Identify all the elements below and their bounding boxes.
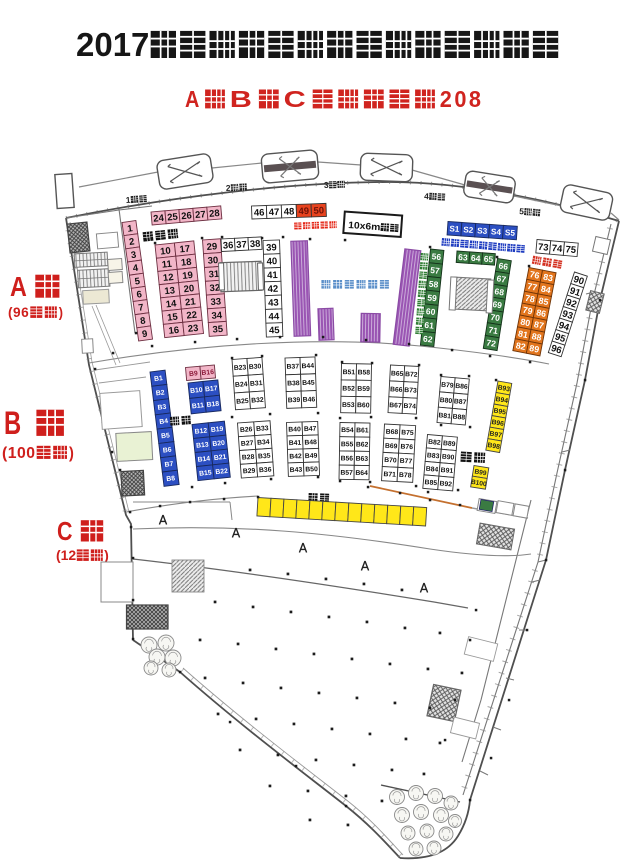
svg-text:A: A <box>10 271 30 302</box>
svg-text:B71: B71 <box>383 471 396 479</box>
svg-text:B7: B7 <box>164 461 174 469</box>
svg-text:66: 66 <box>498 260 509 271</box>
svg-text:B44: B44 <box>301 363 314 370</box>
svg-text:41: 41 <box>267 270 279 281</box>
svg-text:72: 72 <box>486 337 497 348</box>
svg-text:B90: B90 <box>442 454 455 462</box>
svg-text:B23: B23 <box>234 364 247 372</box>
svg-text:62: 62 <box>423 334 434 345</box>
svg-text:79: 79 <box>522 305 534 317</box>
svg-text:30: 30 <box>207 255 218 267</box>
svg-text:B37: B37 <box>286 363 299 370</box>
svg-text:B39: B39 <box>288 397 301 404</box>
svg-text:S4: S4 <box>491 227 502 237</box>
svg-text:61: 61 <box>424 320 435 331</box>
svg-text:B49: B49 <box>305 453 318 460</box>
svg-text:B57: B57 <box>340 470 353 477</box>
svg-text:35: 35 <box>212 324 224 336</box>
svg-text:58: 58 <box>428 279 439 290</box>
svg-text:89: 89 <box>529 343 541 355</box>
svg-text:B2: B2 <box>156 389 166 397</box>
svg-text:B31: B31 <box>250 380 263 388</box>
svg-text:B17: B17 <box>205 385 218 393</box>
svg-text:B80: B80 <box>439 397 452 405</box>
svg-text:13: 13 <box>164 285 176 297</box>
svg-text:85: 85 <box>538 295 550 307</box>
svg-text:B12: B12 <box>194 427 207 435</box>
svg-text:80: 80 <box>520 317 532 329</box>
svg-text:B42: B42 <box>289 453 302 460</box>
svg-text:C: C <box>57 516 76 546</box>
svg-text:B91: B91 <box>440 467 453 475</box>
svg-text:B: B <box>230 86 256 112</box>
svg-text:B55: B55 <box>341 441 354 448</box>
svg-text:B19: B19 <box>211 426 224 434</box>
svg-text:B54: B54 <box>341 427 354 434</box>
svg-text:49: 49 <box>298 206 309 217</box>
svg-text:B33: B33 <box>256 425 269 433</box>
svg-text:59: 59 <box>427 292 438 303</box>
svg-text:B21: B21 <box>214 454 227 462</box>
svg-text:): ) <box>59 304 64 320</box>
svg-text:44: 44 <box>268 311 280 322</box>
svg-text:10: 10 <box>160 246 172 258</box>
svg-text:47: 47 <box>269 207 280 218</box>
svg-text:2: 2 <box>226 183 231 193</box>
svg-text:11: 11 <box>161 259 173 271</box>
svg-text:22: 22 <box>186 310 198 322</box>
svg-text:B68: B68 <box>385 429 398 437</box>
svg-text:B28: B28 <box>242 454 255 462</box>
svg-text:10x6m: 10x6m <box>348 220 381 233</box>
svg-text:87: 87 <box>533 319 545 331</box>
svg-text:81: 81 <box>517 328 529 340</box>
svg-text:B32: B32 <box>251 397 264 405</box>
svg-text:83: 83 <box>542 272 554 284</box>
svg-text:74: 74 <box>551 243 563 255</box>
svg-text:S1: S1 <box>449 224 460 234</box>
svg-text:B24: B24 <box>235 381 248 389</box>
svg-text:24: 24 <box>153 213 165 225</box>
svg-text:B86: B86 <box>455 383 468 391</box>
svg-text:B85: B85 <box>424 479 437 487</box>
svg-text:B65: B65 <box>391 370 404 378</box>
svg-text:20: 20 <box>183 283 195 295</box>
svg-text:B48: B48 <box>304 439 317 446</box>
svg-text:B84: B84 <box>425 466 438 474</box>
svg-text:B27: B27 <box>241 440 254 448</box>
svg-text:B50: B50 <box>305 466 318 473</box>
svg-text:88: 88 <box>531 331 543 343</box>
svg-text:B78: B78 <box>399 472 412 480</box>
svg-text:B18: B18 <box>206 401 219 409</box>
svg-text:B60: B60 <box>357 402 370 409</box>
svg-text:B15: B15 <box>199 470 212 478</box>
svg-text:B63: B63 <box>356 456 369 463</box>
svg-text:71: 71 <box>488 325 499 336</box>
svg-text:(100: (100 <box>2 445 36 462</box>
svg-text:B75: B75 <box>401 429 414 437</box>
svg-text:B81: B81 <box>438 412 451 420</box>
svg-text:B3: B3 <box>157 404 167 412</box>
svg-text:65: 65 <box>483 254 493 265</box>
svg-text:12: 12 <box>162 272 174 284</box>
svg-text:B20: B20 <box>212 440 225 448</box>
svg-text:75: 75 <box>565 244 577 256</box>
svg-text:(12: (12 <box>56 547 76 563</box>
svg-text:B58: B58 <box>358 369 371 376</box>
svg-text:3: 3 <box>324 180 329 190</box>
svg-text:40: 40 <box>266 256 277 267</box>
svg-text:208: 208 <box>440 86 484 112</box>
svg-text:B41: B41 <box>289 440 302 447</box>
svg-text:B36: B36 <box>259 466 272 474</box>
svg-text:50: 50 <box>313 205 324 216</box>
svg-text:64: 64 <box>471 253 481 264</box>
svg-text:27: 27 <box>195 209 206 221</box>
svg-text:B16: B16 <box>201 369 214 377</box>
svg-text:B4: B4 <box>159 418 169 426</box>
svg-text:B43: B43 <box>290 467 303 474</box>
svg-text:B26: B26 <box>240 426 253 434</box>
svg-text:33: 33 <box>210 296 221 308</box>
svg-text:23: 23 <box>187 323 199 335</box>
svg-text:): ) <box>104 547 109 563</box>
svg-text:B89: B89 <box>443 440 456 448</box>
svg-text:B88: B88 <box>452 414 465 422</box>
svg-text:34: 34 <box>211 310 223 322</box>
svg-text:A: A <box>185 86 202 112</box>
svg-text:B66: B66 <box>390 386 403 394</box>
svg-text:B73: B73 <box>404 387 417 395</box>
svg-text:B92: B92 <box>439 480 452 488</box>
svg-text:B40: B40 <box>288 426 301 433</box>
svg-text:B35: B35 <box>258 453 271 461</box>
svg-text:73: 73 <box>537 242 548 254</box>
svg-text:B62: B62 <box>356 441 369 448</box>
svg-text:B72: B72 <box>405 371 418 379</box>
svg-text:B5: B5 <box>161 432 171 440</box>
svg-text:68: 68 <box>494 286 505 297</box>
svg-text:B: B <box>4 405 27 441</box>
svg-text:B30: B30 <box>249 363 262 371</box>
svg-text:56: 56 <box>431 251 442 262</box>
svg-text:B56: B56 <box>341 455 354 462</box>
svg-text:C: C <box>284 86 310 112</box>
svg-text:78: 78 <box>524 293 536 305</box>
svg-text:25: 25 <box>167 212 179 224</box>
svg-text:B61: B61 <box>356 427 369 434</box>
svg-text:B76: B76 <box>400 444 413 452</box>
svg-text:B46: B46 <box>303 396 316 403</box>
svg-text:63: 63 <box>458 252 468 263</box>
svg-text:76: 76 <box>529 269 541 281</box>
svg-text:B77: B77 <box>400 458 413 466</box>
svg-text:): ) <box>69 445 74 462</box>
svg-text:B6: B6 <box>163 447 173 455</box>
svg-text:29: 29 <box>206 241 217 253</box>
svg-text:4: 4 <box>424 191 429 201</box>
svg-text:17: 17 <box>179 243 191 255</box>
svg-text:S5: S5 <box>505 228 516 238</box>
svg-text:18: 18 <box>180 257 192 269</box>
svg-text:S2: S2 <box>463 225 474 235</box>
svg-text:38: 38 <box>250 239 261 251</box>
svg-text:67: 67 <box>496 273 507 284</box>
svg-text:57: 57 <box>430 265 441 276</box>
svg-text:B10: B10 <box>190 387 203 395</box>
svg-text:2017: 2017 <box>76 26 149 63</box>
svg-text:B8: B8 <box>166 475 176 483</box>
svg-text:B70: B70 <box>384 457 397 465</box>
svg-text:B25: B25 <box>236 398 249 406</box>
svg-text:48: 48 <box>284 206 295 217</box>
svg-text:B34: B34 <box>257 439 270 447</box>
svg-text:B14: B14 <box>197 455 210 463</box>
svg-text:B11: B11 <box>192 402 205 410</box>
svg-text:B29: B29 <box>243 468 256 476</box>
svg-text:37: 37 <box>236 239 247 251</box>
svg-text:28: 28 <box>209 208 220 220</box>
svg-text:B47: B47 <box>304 426 317 433</box>
svg-text:S3: S3 <box>477 226 488 236</box>
svg-text:B52: B52 <box>342 386 355 393</box>
svg-text:19: 19 <box>182 270 194 282</box>
svg-text:(96: (96 <box>8 304 29 320</box>
svg-text:82: 82 <box>515 340 527 352</box>
svg-text:B64: B64 <box>355 470 368 477</box>
svg-text:86: 86 <box>535 307 547 319</box>
svg-text:16: 16 <box>168 325 180 337</box>
svg-text:B74: B74 <box>403 403 416 411</box>
svg-text:60: 60 <box>425 306 436 317</box>
svg-text:B69: B69 <box>385 443 398 451</box>
svg-text:26: 26 <box>181 210 192 222</box>
svg-text:46: 46 <box>254 207 265 218</box>
svg-text:B51: B51 <box>343 369 356 376</box>
svg-text:B22: B22 <box>215 468 228 476</box>
svg-text:B87: B87 <box>454 398 467 406</box>
svg-text:42: 42 <box>267 284 278 295</box>
svg-text:36: 36 <box>223 240 234 252</box>
svg-text:B38: B38 <box>287 380 300 387</box>
svg-text:77: 77 <box>527 281 539 293</box>
svg-text:B53: B53 <box>342 402 355 409</box>
svg-text:21: 21 <box>185 296 197 308</box>
svg-text:43: 43 <box>268 297 279 308</box>
svg-text:B9: B9 <box>189 370 198 378</box>
svg-text:69: 69 <box>492 299 503 310</box>
svg-text:B45: B45 <box>302 380 315 387</box>
svg-text:B1: B1 <box>154 375 164 383</box>
svg-text:14: 14 <box>165 298 177 310</box>
svg-text:B59: B59 <box>357 386 370 393</box>
svg-text:B13: B13 <box>196 441 209 449</box>
svg-text:39: 39 <box>266 242 277 253</box>
svg-text:45: 45 <box>269 325 281 336</box>
svg-text:84: 84 <box>540 284 552 296</box>
svg-text:B82: B82 <box>428 439 441 447</box>
svg-text:B79: B79 <box>441 382 454 390</box>
svg-text:15: 15 <box>167 312 179 324</box>
svg-text:B83: B83 <box>427 452 440 460</box>
svg-text:B67: B67 <box>389 402 402 410</box>
